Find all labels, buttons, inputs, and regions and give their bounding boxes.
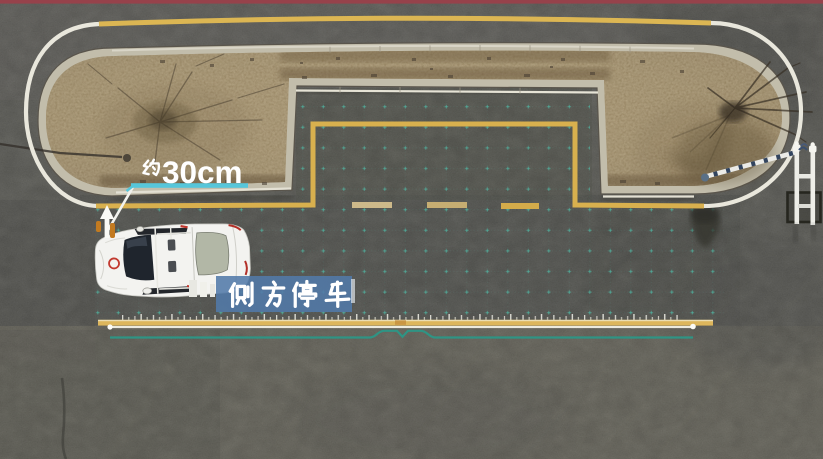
svg-text:30cm: 30cm — [162, 154, 243, 190]
